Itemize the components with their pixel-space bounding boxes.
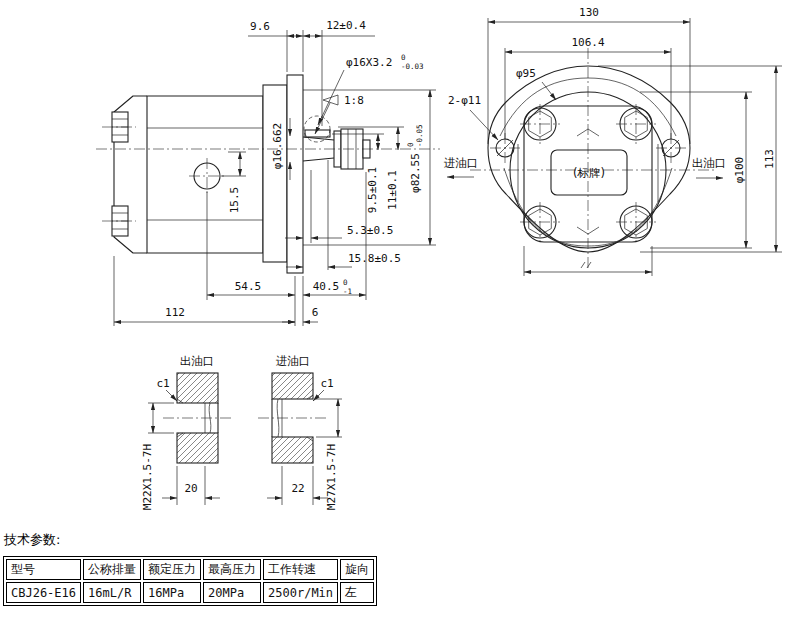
specs-header-row: 型号 公称排量 额定压力 最高压力 工作转速 旋向: [6, 559, 374, 580]
inlet-port-title: 进油口: [276, 354, 311, 368]
outlet-depth: 20: [184, 482, 197, 495]
bolt-bottom-right: [616, 202, 656, 242]
thread-callout-tol-top: 0: [401, 53, 406, 62]
outlet-label: 出油口: [692, 156, 727, 170]
value-model: CBJ26-E16: [6, 582, 81, 603]
thread-callout-tol-bottom: -0.03: [401, 62, 424, 71]
inlet-hatch-top: [272, 373, 313, 399]
front-view-dimensions: 130 106.4 φ95 2-φ11 进油口 出油口 φ100 113: [444, 6, 782, 276]
outlet-hatch-bottom: [177, 433, 218, 463]
dim-6: 6: [312, 306, 319, 319]
header-rotation: 旋向: [340, 559, 374, 580]
dim-flange-thickness: 9.6: [250, 20, 270, 33]
front-cover: [263, 85, 287, 262]
value-rated-pressure: 16MPa: [143, 582, 201, 603]
dim-40-5-tol-top: 0: [343, 278, 348, 287]
taper-ratio: 1:8: [344, 94, 364, 107]
value-rotation: 左: [340, 582, 374, 603]
dim-taper-gauge-dia: φ16.662: [271, 123, 284, 169]
front-view: (标牌) 130 106.4 φ95 2-φ11 进油口 出油口 φ100: [444, 6, 782, 276]
technical-drawing: 9.6 12±0.4 φ16X3.2 0 -0.03 1:8 φ16.662 1…: [0, 0, 800, 530]
dim-body-dia: φ100: [733, 157, 746, 184]
inlet-port-detail: 进油口 c1 M27X1.5-7H 22: [258, 354, 342, 510]
bolt-top-left: [520, 104, 560, 144]
header-max-pressure: 最高压力: [203, 559, 261, 580]
outlet-thread: M22X1.5-7H: [141, 444, 154, 510]
dim-40-5: 40.5: [313, 280, 340, 293]
mount-holes-callout: 2-φ11: [448, 94, 481, 107]
dim-5-3: 5.3±0.5: [347, 224, 393, 237]
dim-112: 112: [165, 306, 185, 319]
inlet-depth: 22: [291, 482, 304, 495]
taper-symbol: [323, 95, 338, 105]
inlet-hatch-bottom: [272, 437, 313, 463]
dim-54-5: 54.5: [235, 280, 262, 293]
bolt-top-right: [616, 104, 656, 144]
specs-table: 型号 公称排量 额定压力 最高压力 工作转速 旋向 CBJ26-E16 16mL…: [3, 556, 377, 606]
specs-value-row: CBJ26-E16 16mL/R 16MPa 20MPa 2500r/Min 左: [6, 582, 374, 603]
dim-spigot-tol-top: 0: [406, 142, 415, 147]
dim-bolt-circle: φ95: [516, 67, 536, 80]
dim-key-11: 11±0.1: [386, 170, 399, 210]
engineering-drawing-page: 9.6 12±0.4 φ16X3.2 0 -0.03 1:8 φ16.662 1…: [0, 0, 800, 624]
mounting-flange-plate: [287, 75, 303, 273]
dim-width: 130: [579, 6, 599, 19]
port-details: 出油口 c1 M22X1.5-7H 20 进油口: [141, 354, 342, 510]
nameplate-label: (标牌): [573, 166, 605, 180]
dim-drain-offset: 15.5: [228, 187, 241, 214]
dim-height: 113: [763, 149, 776, 169]
header-rated-pressure: 额定压力: [143, 559, 201, 580]
outlet-port-detail: 出油口 c1 M22X1.5-7H 20: [141, 354, 232, 510]
shaft-key: [305, 130, 330, 137]
inlet-chamfer: c1: [320, 377, 333, 390]
side-view: 9.6 12±0.4 φ16X3.2 0 -0.03 1:8 φ16.662 1…: [96, 19, 440, 326]
outlet-chamfer: c1: [156, 377, 169, 390]
dim-bolt-spacing: 106.4: [571, 36, 604, 49]
value-speed: 2500r/Min: [263, 582, 338, 603]
dim-15-8: 15.8±0.5: [348, 252, 401, 265]
outlet-port-title: 出油口: [180, 354, 215, 368]
dim-shaft-ext: 12±0.4: [326, 19, 366, 32]
dim-spigot-dia: φ82.55: [409, 153, 422, 193]
header-speed: 工作转速: [263, 559, 338, 580]
front-view-outline: (标牌): [470, 48, 714, 268]
bolt-bottom-left: [520, 202, 560, 242]
thread-callout: φ16X3.2: [346, 56, 392, 69]
inlet-thread: M27X1.5-7H: [325, 444, 338, 510]
specs-title: 技术参数:: [4, 531, 60, 549]
value-max-pressure: 20MPa: [203, 582, 261, 603]
outlet-hatch-top: [177, 373, 218, 403]
header-displacement: 公称排量: [83, 559, 141, 580]
header-model: 型号: [6, 559, 81, 580]
dim-40-5-tol-bottom: -1: [343, 287, 352, 296]
dim-key-9-5: 9.5±0.1: [366, 167, 379, 213]
dim-spigot-tol-bottom: -0.05: [415, 124, 424, 147]
value-displacement: 16mL/R: [83, 582, 141, 603]
inlet-label: 进油口: [444, 156, 479, 170]
